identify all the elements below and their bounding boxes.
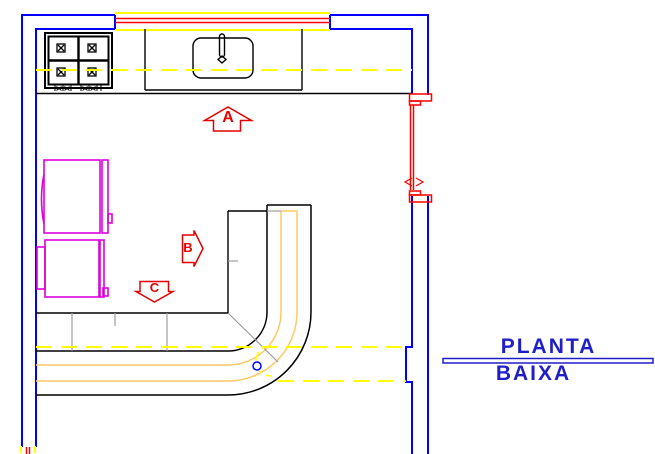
sink-icon bbox=[193, 34, 253, 78]
refrigerator-icon bbox=[42, 160, 113, 233]
drawing-title-line2: BAIXA bbox=[443, 363, 624, 384]
exterior-walls bbox=[22, 15, 428, 454]
section-label-c: C bbox=[147, 281, 162, 294]
appliance-icon bbox=[37, 240, 108, 297]
drawing-title-line1: PLANTA bbox=[443, 336, 654, 357]
floor-drain-icon bbox=[253, 362, 261, 370]
section-label-b: B bbox=[181, 241, 195, 254]
wall-section-marks bbox=[21, 446, 35, 454]
section-label-a: A bbox=[219, 110, 237, 126]
window bbox=[115, 13, 330, 30]
floor-plan-canvas[interactable]: A B C PLANTA BAIXA bbox=[0, 0, 655, 454]
entry-door bbox=[405, 94, 432, 202]
floor-plan-drawing bbox=[0, 0, 655, 454]
stove-icon bbox=[45, 33, 112, 91]
